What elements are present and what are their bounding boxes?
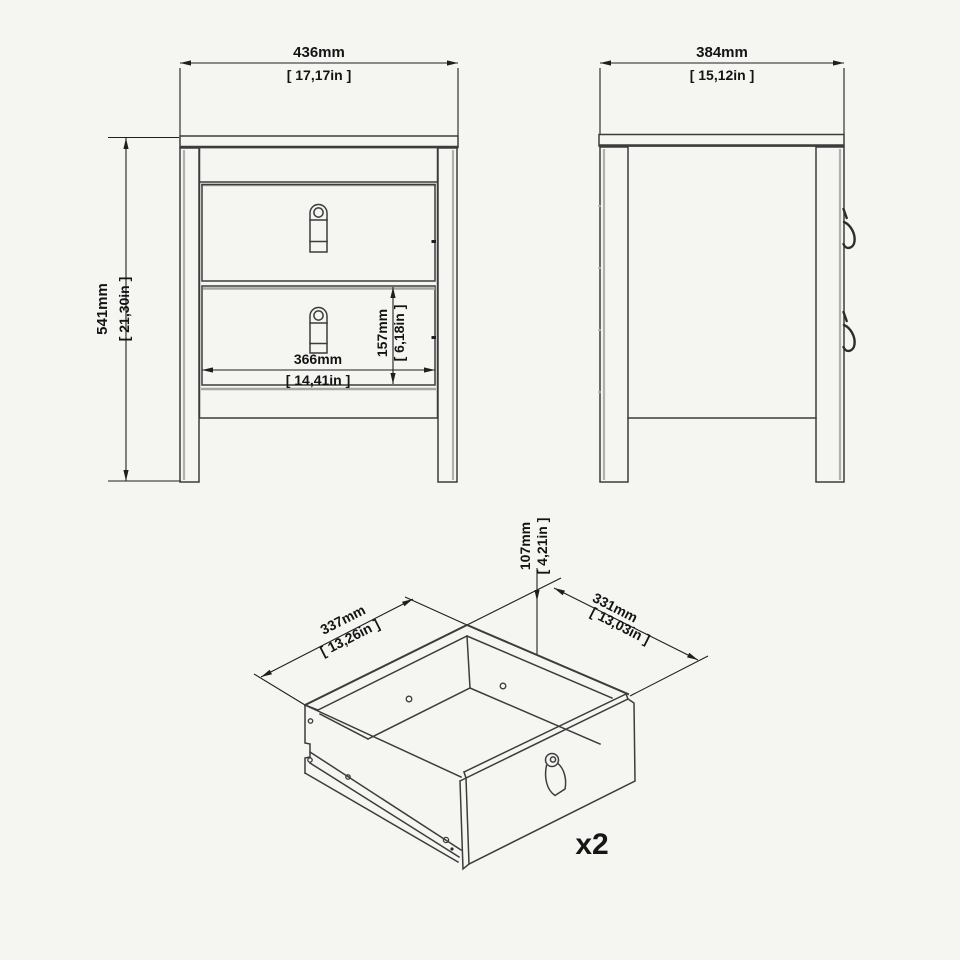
rail-pin xyxy=(450,847,453,850)
side-depth-in-label: [ 15,12in ] xyxy=(690,67,755,83)
cam-hole-dot xyxy=(598,391,601,394)
front-width-in-label: [ 17,17in ] xyxy=(287,67,352,83)
cam-hole-dot xyxy=(598,205,601,208)
technical-drawing-page: 436mm [ 17,17in ] 541mm [ 21,30in ] xyxy=(0,0,960,960)
front-height-mm-label: 541mm xyxy=(94,283,111,335)
drawer-box-height-in-label: [ 4,21in ] xyxy=(534,518,550,575)
drawer-stop-mark xyxy=(432,240,437,243)
side-depth-mm-label: 384mm xyxy=(696,44,748,61)
drawer-width-in-label: [ 14,41in ] xyxy=(286,372,351,388)
cam-hole-dot xyxy=(598,267,601,270)
drawer-height-in-label: [ 6,18in ] xyxy=(391,305,407,362)
furniture-dimension-diagram: 436mm [ 17,17in ] 541mm [ 21,30in ] xyxy=(0,0,960,960)
drawer-stop-mark xyxy=(432,336,437,339)
front-width-mm-label: 436mm xyxy=(293,44,345,61)
front-height-in-label: [ 21,30in ] xyxy=(116,277,132,342)
drawer-box-height-mm-label: 107mm xyxy=(517,522,533,570)
drawer-width-mm-label: 366mm xyxy=(294,351,342,367)
drawer-height-mm-label: 157mm xyxy=(374,309,390,357)
cam-hole-dot xyxy=(598,329,601,332)
quantity-label: x2 xyxy=(575,828,608,861)
